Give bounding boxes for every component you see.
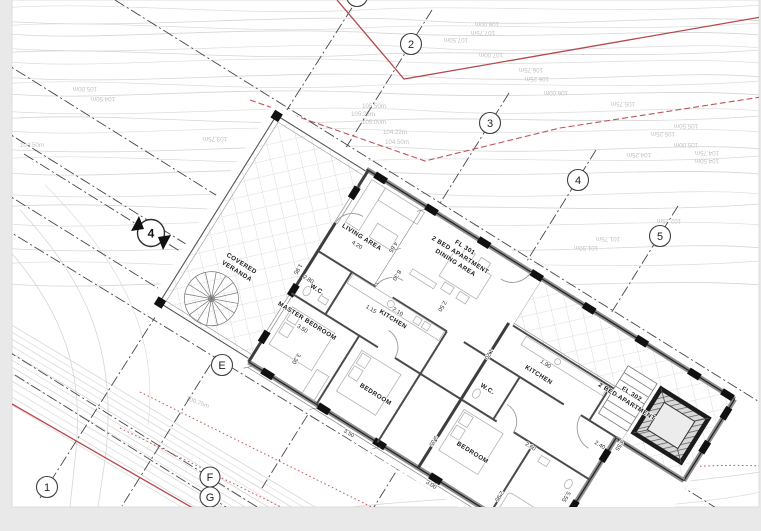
grid-bubble-1: 1 [37, 477, 58, 498]
section-marker-label: 4 [148, 227, 155, 241]
contour-elevation-label: 104.75m [695, 149, 719, 156]
grid-bubble-label: E [218, 360, 225, 372]
grid-bubble-label: 3 [487, 118, 493, 130]
contour-elevation-label: 104.50m [385, 139, 409, 146]
contour-elevation-label: 107.50m [444, 36, 468, 43]
contour-elevation-label: 103.75m [203, 135, 227, 142]
contour-elevation-label: 101.75m [596, 235, 620, 242]
grid-bubble-label: 2 [408, 39, 414, 51]
grid-bubble-F: F [200, 467, 220, 487]
contour-elevation-label: 105.75m [611, 100, 635, 107]
contour-elevation-label: 104.22m [383, 129, 407, 136]
grid-bubble-label: F [207, 472, 214, 484]
contour-elevation-label: 106.00m [544, 89, 568, 96]
contour-elevation-label: 105.50m [362, 103, 386, 110]
contour-elevation-label: 102.25m [657, 217, 681, 224]
grid-bubble-label: 5 [657, 231, 663, 243]
grid-bubble-label: 4 [575, 175, 581, 187]
contour-elevation-label: 104.25m [627, 151, 651, 158]
contour-elevation-label: 105.00m [362, 119, 386, 126]
contour-elevation-label: 107.00m [479, 51, 503, 58]
grid-bubble-4: 4 [568, 170, 589, 191]
contour-elevation-label: 106.75m [519, 66, 543, 73]
contour-elevation-label: 105.25m [651, 130, 675, 137]
grid-bubble-label: G [206, 492, 215, 504]
contour-elevation-label: 105.00m [73, 85, 97, 92]
site-floor-plan: 108.00m 107.75m 107.50m 107.00m 106.75m … [0, 0, 761, 531]
contour-elevation-label: 106.25m [525, 75, 549, 82]
grid-bubble-5: 5 [650, 226, 671, 247]
contour-elevation-label: 101.50m [574, 244, 598, 251]
grid-bubble-E: E [212, 355, 233, 376]
grid-bubble-3: 3 [480, 113, 501, 134]
drawing-page: 108.00m 107.75m 107.50m 107.00m 106.75m … [0, 0, 761, 531]
grid-bubble-G: G [200, 487, 220, 507]
contour-elevation-label: 105.25m [351, 111, 375, 118]
contour-elevation-label: 108.00m [475, 20, 499, 27]
contour-elevation-label: 104.50m [695, 157, 719, 164]
contour-elevation-label: 105.00m [674, 141, 698, 148]
contour-elevation-label: 105.50m [674, 122, 698, 129]
contour-elevation-label: 104.50m [91, 95, 115, 102]
contour-elevation-label: 107.75m [471, 29, 495, 36]
grid-bubble-2: 2 [401, 34, 422, 55]
grid-bubble-label: 1 [44, 482, 50, 494]
